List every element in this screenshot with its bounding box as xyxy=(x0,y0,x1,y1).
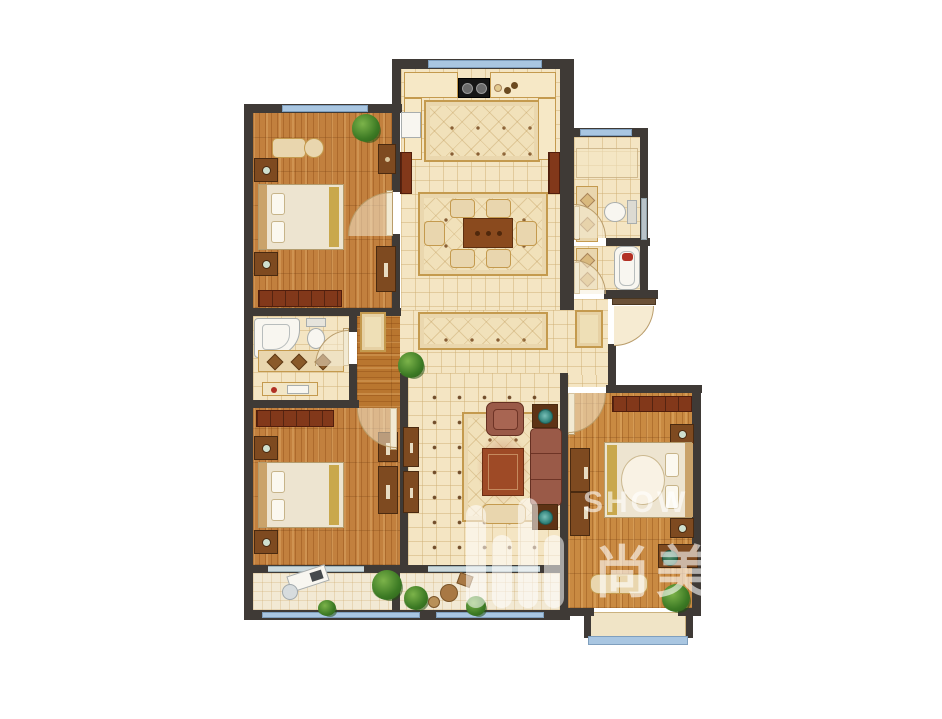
watermark-brand-text: SHOW xyxy=(583,486,713,522)
nightstand xyxy=(254,158,278,182)
hallway-runner-rug xyxy=(418,312,548,350)
bed-pillow xyxy=(271,221,285,243)
watermark-logo-bar xyxy=(544,535,564,608)
potted-plant xyxy=(404,586,428,610)
nightstand-lamp xyxy=(262,260,271,269)
armchair-cushion xyxy=(493,409,518,430)
sink-basin xyxy=(291,354,308,371)
dining-chair xyxy=(450,199,475,218)
cooktop-burner xyxy=(462,83,473,94)
dining-chair xyxy=(450,249,475,268)
nightstand xyxy=(254,530,278,554)
double-bed xyxy=(258,462,344,528)
nightstand-lamp xyxy=(262,166,271,175)
cabinet-handle xyxy=(410,488,413,498)
bathtub xyxy=(614,246,640,290)
wall-bedroom3-top xyxy=(606,385,702,393)
kitchen-jar xyxy=(504,87,511,94)
potted-plant xyxy=(372,570,402,600)
floor-plan: SHOW 尚美 xyxy=(0,0,942,719)
laptop xyxy=(309,570,323,582)
bay-window-glass xyxy=(588,636,688,645)
potted-plant xyxy=(352,114,380,142)
corner-bathtub-inner xyxy=(262,324,290,350)
bed-throw xyxy=(329,465,339,525)
chaise-bench-end xyxy=(304,138,324,158)
dining-chair xyxy=(486,249,511,268)
nightstand-lamp xyxy=(262,538,271,547)
cabinet-handle xyxy=(410,443,413,453)
balcony-window-left xyxy=(262,612,420,618)
entry-door-swing xyxy=(614,306,654,346)
counter-tray xyxy=(287,385,309,394)
watermark-logo-bar xyxy=(518,498,538,608)
dresser-handle xyxy=(384,263,388,277)
side-table-plant xyxy=(538,510,553,525)
kitchen-window xyxy=(428,60,542,68)
toilet-tank xyxy=(627,200,637,224)
wall-bay-left xyxy=(584,612,591,638)
bedroom1-window xyxy=(282,105,368,112)
coffee-table-top xyxy=(488,454,518,490)
wardrobe-closet xyxy=(612,396,692,412)
entry-door-mat xyxy=(575,310,603,348)
nightstand xyxy=(254,252,278,276)
bed-pillow xyxy=(271,499,285,521)
bathroom-window xyxy=(580,129,632,136)
cooktop xyxy=(458,78,490,98)
wall-dining-bath-shared xyxy=(560,59,574,310)
watermark-cjk-text: 尚美 xyxy=(594,528,724,598)
wardrobe xyxy=(378,466,398,514)
dining-chair xyxy=(516,221,537,246)
sink-basin xyxy=(267,354,284,371)
entry-door-leaf xyxy=(612,298,656,305)
hallway-mat xyxy=(360,312,386,352)
table-decor xyxy=(486,231,491,236)
wardrobe-closet xyxy=(256,410,334,427)
kitchen-jar xyxy=(511,82,518,89)
tv-cabinet xyxy=(403,427,419,467)
wall-bath2-bottom xyxy=(244,400,359,408)
side-table xyxy=(532,404,558,428)
dining-chair xyxy=(424,221,445,246)
bathroom-counter xyxy=(262,382,318,396)
wardrobe-handle xyxy=(386,485,390,499)
bed-headboard xyxy=(259,463,267,527)
wicker-table xyxy=(428,596,440,608)
bathtub-pillow xyxy=(622,253,633,261)
watermark-logo-bar xyxy=(492,535,512,608)
dresser xyxy=(376,246,396,292)
wall-bay-right xyxy=(686,612,693,638)
kitchen-tall-cabinet xyxy=(400,152,412,194)
nightstand-lamp xyxy=(678,430,687,439)
bed-pillow xyxy=(271,471,285,493)
toilet-tank xyxy=(306,318,326,327)
watermark-logo-bar xyxy=(466,505,486,608)
balcony-window-right xyxy=(436,612,544,618)
bathroom-cabinet xyxy=(576,148,638,178)
kitchen-counter xyxy=(404,72,458,98)
soap-dispenser xyxy=(271,387,277,393)
potted-plant xyxy=(398,352,424,378)
wall-kitchen-left xyxy=(392,59,401,113)
fridge xyxy=(401,112,421,138)
bed-pillow xyxy=(665,453,679,477)
tv-cabinet xyxy=(403,471,419,513)
potted-plant xyxy=(318,600,336,616)
wardrobe-closet xyxy=(258,290,342,307)
coffee-table xyxy=(482,448,524,496)
kitchen-jar xyxy=(494,84,502,92)
table-decor xyxy=(497,231,502,236)
desk-chair xyxy=(282,584,298,600)
wall-outer-left xyxy=(244,104,253,620)
bed-pillow xyxy=(271,193,285,215)
bathroom-frosted-window xyxy=(641,198,647,240)
sofa xyxy=(530,428,562,506)
bay-window-sill xyxy=(590,612,686,638)
nightstand xyxy=(254,436,278,460)
double-bed xyxy=(258,184,344,250)
kitchen-counter xyxy=(538,98,556,160)
dining-chair xyxy=(486,199,511,218)
armchair xyxy=(486,402,524,436)
nightstand xyxy=(670,424,694,444)
wall-bath2-right-upper xyxy=(349,308,357,332)
bed-throw xyxy=(329,187,339,247)
kitchen-rug xyxy=(424,100,540,162)
kitchen-tall-cabinet xyxy=(548,152,560,194)
wicker-chair xyxy=(440,584,458,602)
wardrobe-handle xyxy=(584,467,588,479)
wall-living-left xyxy=(400,373,408,567)
bed-headboard xyxy=(259,185,267,249)
toilet-bowl xyxy=(604,202,626,222)
side-table-plant xyxy=(538,409,553,424)
toilet xyxy=(604,200,640,224)
table-decor xyxy=(475,231,480,236)
dresser xyxy=(378,144,396,174)
wall-entry-right xyxy=(608,344,616,388)
nightstand-lamp xyxy=(262,444,271,453)
chaise-bench xyxy=(272,138,306,158)
dining-table xyxy=(463,218,513,248)
cooktop-burner xyxy=(476,83,487,94)
dresser-knob xyxy=(385,157,390,162)
